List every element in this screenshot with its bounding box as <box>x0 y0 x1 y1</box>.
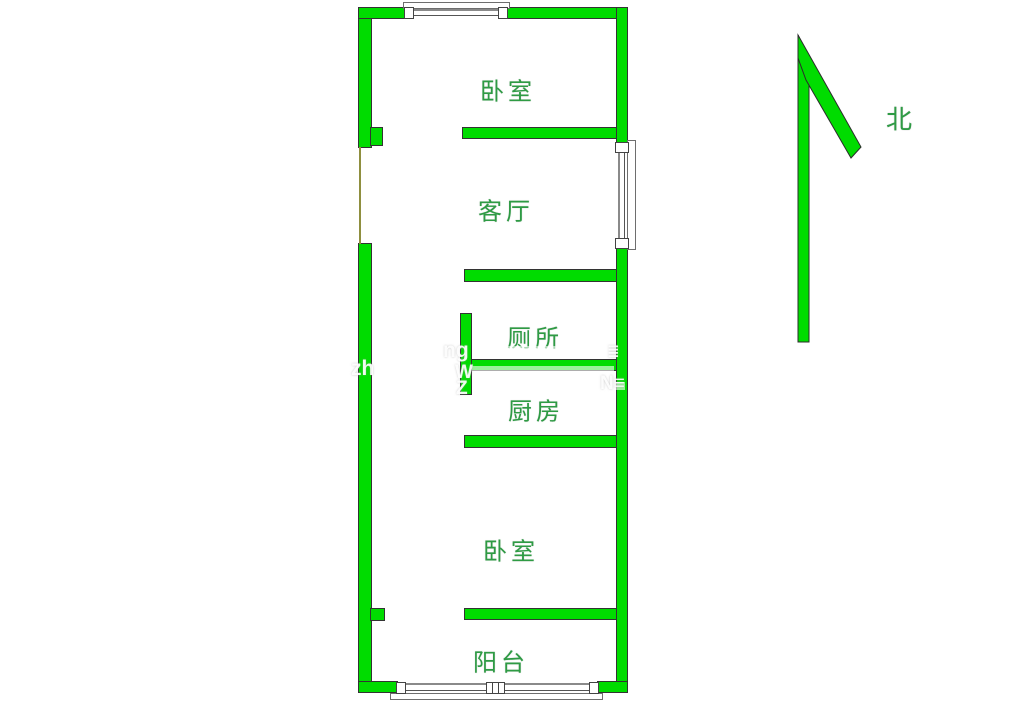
window-right-glazing <box>618 152 625 239</box>
wall-right-upper <box>616 7 628 143</box>
window-top-post-left <box>404 7 414 19</box>
wall-bedroom1-divider <box>462 127 617 139</box>
window-bottom-mullion <box>486 682 505 694</box>
watermark-streak <box>497 346 609 354</box>
window-bottom-sill <box>390 693 603 700</box>
door-opening-line <box>359 147 361 244</box>
room-label-kitchen: 厨房 <box>508 392 564 427</box>
wall-top-right-segment <box>507 7 628 19</box>
room-label-balcony: 阳台 <box>473 643 529 678</box>
room-label-bedroom-bottom: 卧室 <box>483 532 539 567</box>
window-top-outer-frame <box>403 2 510 9</box>
window-top-post-right <box>498 7 508 19</box>
window-bottom-post-left <box>396 682 406 694</box>
window-right-outer-frame <box>627 140 636 250</box>
wall-kitchen-bottom <box>464 435 617 448</box>
north-arrow-icon <box>780 18 890 358</box>
window-right-post-top <box>615 142 629 153</box>
floor-plan-canvas: 卧室 客厅 厕所 厨房 卧室 阳台 北 zh ng W Z N≡ ≣ <box>0 0 1024 710</box>
watermark-text: ng <box>443 339 469 363</box>
window-right-post-bottom <box>615 238 629 249</box>
wall-bedroom2-bottom <box>464 608 617 620</box>
mullion-line <box>493 683 499 693</box>
wall-bottom-right-segment <box>597 681 628 693</box>
north-label: 北 <box>886 100 912 137</box>
wall-top-left-segment <box>358 7 406 19</box>
wall-jamb-bottom <box>370 608 385 621</box>
window-bottom-post-right <box>589 682 599 694</box>
room-label-bedroom-top: 卧室 <box>480 72 536 107</box>
window-top-glazing <box>412 9 501 16</box>
wall-jamb-top <box>370 127 383 146</box>
watermark-text: zh <box>351 357 374 381</box>
watermark-text: N≡ <box>600 373 625 395</box>
wall-right-lower <box>616 248 628 693</box>
watermark-text: Z <box>456 378 468 400</box>
wall-livingroom-bottom <box>464 269 617 282</box>
wall-bottom-left-segment <box>358 681 398 693</box>
watermark-streak <box>472 366 614 375</box>
watermark-text: ≣ <box>607 342 620 360</box>
room-label-living-room: 客厅 <box>478 192 534 227</box>
wall-left-lower <box>358 243 372 693</box>
